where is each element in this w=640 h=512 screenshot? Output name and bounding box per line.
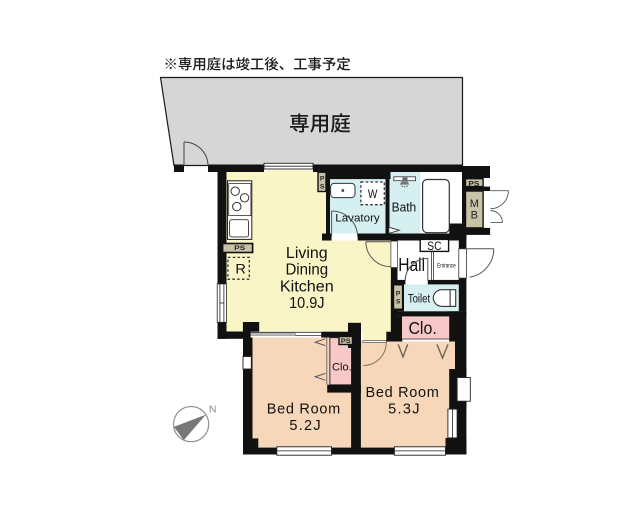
svg-text:PS: PS [468, 179, 479, 188]
svg-text:Lavatory: Lavatory [335, 213, 380, 225]
svg-text:Dining: Dining [285, 262, 328, 279]
svg-text:5.3J: 5.3J [388, 401, 419, 417]
svg-text:SC: SC [427, 239, 441, 253]
svg-text:PS: PS [341, 338, 352, 345]
svg-text:Bed Room: Bed Room [267, 401, 341, 417]
svg-text:5.2J: 5.2J [289, 418, 320, 434]
svg-text:W: W [368, 187, 378, 201]
svg-text:S: S [320, 184, 325, 191]
svg-text:B: B [471, 209, 478, 221]
svg-text:P: P [396, 291, 401, 298]
svg-text:Bath: Bath [392, 199, 417, 214]
svg-text:P: P [320, 176, 325, 183]
svg-text:Living: Living [286, 245, 328, 262]
svg-text:Clo.: Clo. [408, 318, 436, 338]
svg-text:Toilet: Toilet [408, 293, 431, 305]
svg-text:Entrance: Entrance [437, 263, 456, 270]
svg-text:Kitchen: Kitchen [280, 278, 334, 295]
svg-text:10.9J: 10.9J [289, 295, 324, 312]
svg-text:PS: PS [234, 245, 246, 252]
svg-text:S: S [396, 299, 401, 306]
svg-text:N: N [209, 404, 217, 416]
svg-text:Bed Room: Bed Room [366, 385, 439, 401]
svg-text:R: R [235, 261, 246, 277]
svg-text:M: M [470, 198, 479, 210]
svg-text:Clo.: Clo. [332, 362, 352, 374]
